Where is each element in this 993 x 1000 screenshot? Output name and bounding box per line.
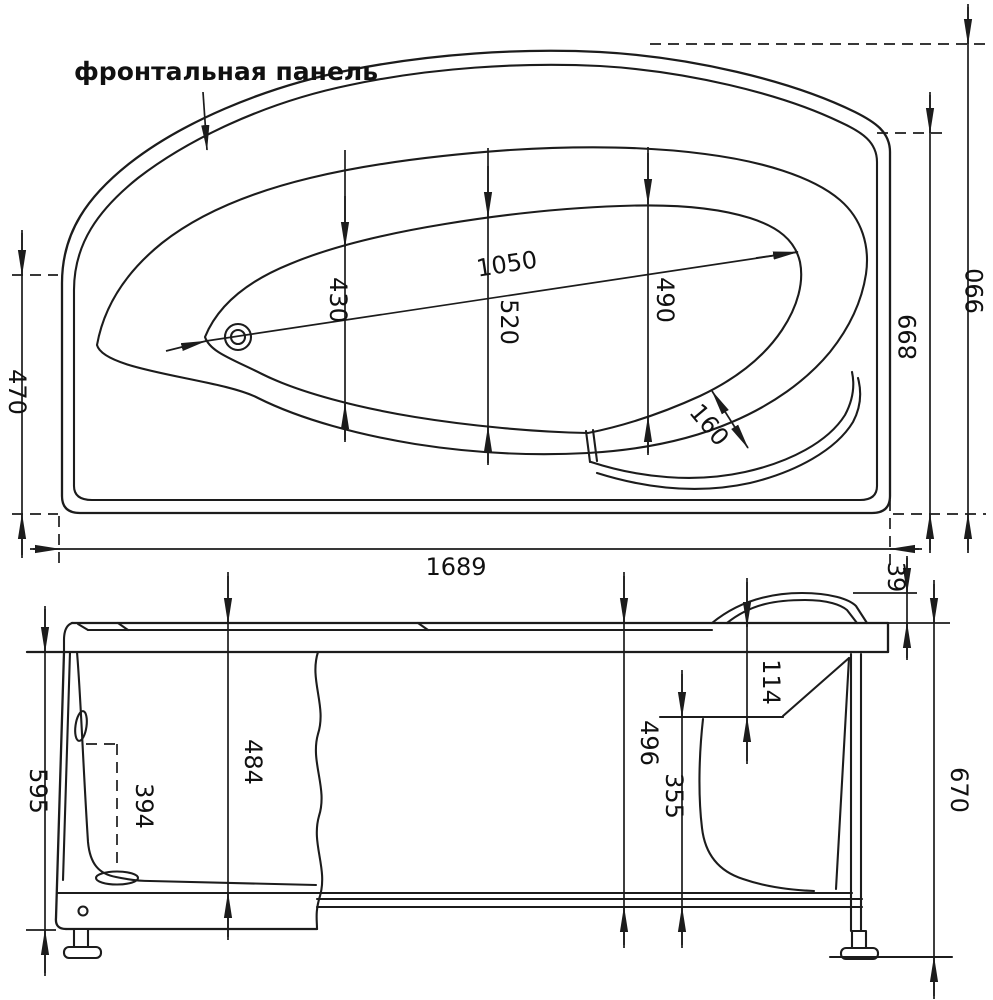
dim-990: 990 bbox=[650, 4, 989, 553]
dim-470: 470 bbox=[3, 230, 58, 558]
dim-39: 39 bbox=[882, 556, 910, 660]
dim-1050-label: 1050 bbox=[474, 245, 539, 282]
dim-496-label: 496 bbox=[635, 720, 663, 766]
dim-670-label: 670 bbox=[945, 767, 973, 813]
dim-470-label: 470 bbox=[3, 369, 31, 415]
dim-490-label: 490 bbox=[651, 277, 679, 323]
dim-899-label: 899 bbox=[894, 314, 922, 360]
front-panel-label: фронтальная панель bbox=[74, 57, 378, 86]
dim-670: 670 bbox=[934, 580, 973, 999]
dim-484: 484 bbox=[228, 572, 267, 940]
bowl-profile-left bbox=[77, 652, 316, 885]
dim-114: 114 bbox=[747, 578, 785, 764]
side-rim bbox=[27, 623, 888, 652]
dim-520: 520 bbox=[488, 148, 523, 465]
dim-355-label: 355 bbox=[660, 773, 688, 819]
frame bbox=[58, 654, 862, 931]
dim-899: 899 bbox=[877, 92, 947, 553]
bathtub-technical-drawing: 470 1689 1050 430 bbox=[0, 0, 993, 1000]
rim-outline bbox=[74, 65, 877, 500]
dim-160-label: 160 bbox=[684, 398, 735, 451]
side-view bbox=[26, 593, 952, 959]
dim-1050: 1050 bbox=[166, 245, 798, 351]
bowl-rim-curve bbox=[97, 147, 867, 454]
dim-595-label: 595 bbox=[24, 768, 52, 814]
dim-114-label: 114 bbox=[757, 659, 785, 705]
headrest bbox=[712, 593, 867, 623]
dim-484-label: 484 bbox=[239, 739, 267, 785]
top-view bbox=[62, 51, 890, 513]
dim-1689-label: 1689 bbox=[425, 553, 486, 581]
dim-394-label: 394 bbox=[130, 783, 158, 829]
drain-offset-line bbox=[86, 744, 117, 868]
dim-990-label: 990 bbox=[961, 268, 989, 314]
dim-490: 490 bbox=[648, 147, 679, 455]
right-foot bbox=[841, 931, 878, 959]
apron-fixing-hole bbox=[79, 907, 88, 916]
break-line bbox=[315, 652, 322, 929]
front-panel-callout: фронтальная панель bbox=[74, 57, 378, 150]
front-apron bbox=[56, 652, 322, 929]
dim-595: 595 bbox=[24, 606, 52, 976]
dim-496: 496 bbox=[624, 572, 663, 948]
top-view-dimensions: 470 1689 1050 430 bbox=[3, 4, 989, 581]
dim-520-label: 520 bbox=[495, 299, 523, 345]
dim-39-label: 39 bbox=[882, 562, 910, 593]
panel-outline bbox=[62, 51, 890, 513]
drawing-canvas: 470 1689 1050 430 bbox=[0, 0, 993, 1000]
left-foot bbox=[64, 929, 101, 958]
dim-430-label: 430 bbox=[324, 277, 352, 323]
